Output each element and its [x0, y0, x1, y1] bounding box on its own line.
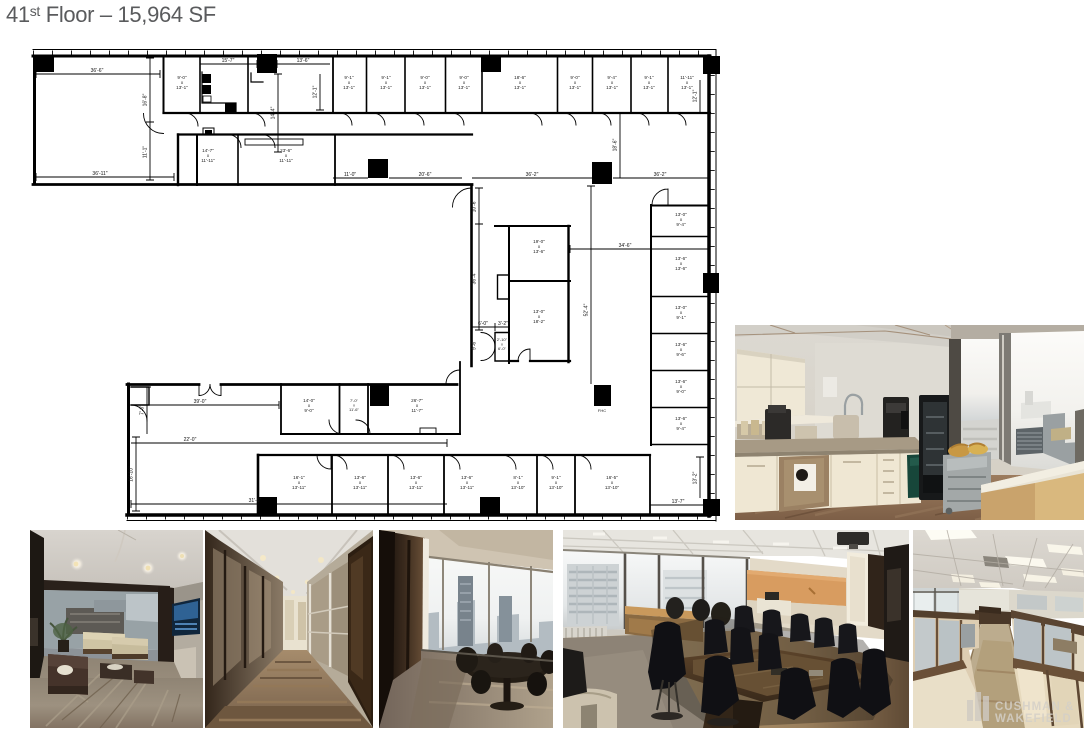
svg-text:31'-6": 31'-6": [249, 498, 262, 504]
svg-text:13'-6"x9'-6": 13'-6"x9'-6": [675, 342, 687, 357]
svg-text:16'-8": 16'-8": [143, 93, 149, 106]
svg-text:13'-0"x9'-1": 13'-0"x9'-1": [675, 305, 687, 320]
svg-text:13'-6"x13'-11": 13'-6"x13'-11": [353, 475, 367, 490]
svg-text:12'-1": 12'-1": [693, 89, 699, 102]
svg-text:23'-6"x11'-11": 23'-6"x11'-11": [279, 148, 293, 163]
svg-text:7'-0"x11'-6": 7'-0"x11'-6": [349, 398, 359, 412]
svg-text:13'-0"x18'-2": 13'-0"x18'-2": [533, 309, 545, 324]
svg-text:20'-6": 20'-6": [419, 172, 432, 178]
svg-text:11'-1": 11'-1": [143, 146, 149, 159]
svg-text:18'-6"x13'-1": 18'-6"x13'-1": [514, 75, 526, 90]
svg-text:9'-1"x13'-1": 9'-1"x13'-1": [643, 75, 655, 90]
svg-text:13'-6"x13'-11": 13'-6"x13'-11": [460, 475, 474, 490]
svg-text:39'-0": 39'-0": [194, 399, 207, 405]
svg-text:FHC: FHC: [598, 408, 606, 413]
svg-text:36'-4": 36'-4": [472, 271, 478, 284]
svg-text:CUSHMAN &: CUSHMAN &: [995, 701, 1074, 713]
svg-text:9'-0"x13'-1": 9'-0"x13'-1": [176, 75, 188, 90]
svg-text:14'-7"x11'-11": 14'-7"x11'-11": [201, 148, 215, 163]
svg-text:9'-4"x13'-1": 9'-4"x13'-1": [606, 75, 618, 90]
svg-text:14'-4": 14'-4": [271, 106, 277, 119]
svg-text:3'-2": 3'-2": [498, 321, 508, 327]
svg-text:13'-6"x13'-11": 13'-6"x13'-11": [409, 475, 423, 490]
svg-text:6'-0": 6'-0": [478, 321, 488, 327]
svg-text:36'-11": 36'-11": [92, 171, 107, 177]
svg-text:26'-7"x11'-7": 26'-7"x11'-7": [411, 398, 423, 413]
svg-text:13'-6": 13'-6": [297, 58, 310, 64]
svg-text:13'-6"x9'-0": 13'-6"x9'-0": [675, 379, 687, 394]
svg-text:11'-11"x13'-1": 11'-11"x13'-1": [680, 75, 694, 90]
svg-text:22'-0": 22'-0": [184, 437, 197, 443]
svg-text:36'-6": 36'-6": [91, 68, 104, 74]
svg-text:12'-1": 12'-1": [313, 85, 319, 98]
svg-text:9'-1"x13'-1": 9'-1"x13'-1": [343, 75, 355, 90]
svg-text:2'-10"x6'-0": 2'-10"x6'-0": [497, 337, 508, 351]
svg-text:36'-2": 36'-2": [526, 172, 539, 178]
svg-text:13'-7": 13'-7": [672, 499, 685, 505]
svg-text:16'-5"x13'-10": 16'-5"x13'-10": [605, 475, 620, 490]
svg-text:15'-7": 15'-7": [222, 58, 235, 64]
svg-text:9'-6": 9'-6": [472, 340, 478, 350]
svg-text:14'-0"x9'-0": 14'-0"x9'-0": [303, 398, 315, 413]
svg-text:16'-1"x13'-11": 16'-1"x13'-11": [292, 475, 306, 490]
svg-text:7'-6": 7'-6": [140, 405, 146, 415]
svg-text:9'-0"x13'-1": 9'-0"x13'-1": [458, 75, 470, 90]
svg-text:13'-2": 13'-2": [693, 471, 699, 484]
svg-text:36'-2": 36'-2": [654, 172, 667, 178]
svg-text:11'-0": 11'-0": [344, 172, 357, 178]
svg-text:34'-6": 34'-6": [619, 243, 632, 249]
svg-text:9'-0"x13'-1": 9'-0"x13'-1": [419, 75, 431, 90]
svg-text:WAKEFIELD: WAKEFIELD: [995, 713, 1072, 725]
svg-text:8'-1"x13'-10": 8'-1"x13'-10": [511, 475, 526, 490]
svg-text:16'-10": 16'-10": [129, 466, 135, 482]
svg-text:13'-6"x9'-4": 13'-6"x9'-4": [675, 416, 687, 431]
svg-text:52'-4": 52'-4": [584, 303, 590, 316]
svg-text:19'-0"x13'-6": 19'-0"x13'-6": [533, 239, 545, 254]
svg-text:9'-1"x13'-1": 9'-1"x13'-1": [380, 75, 392, 90]
svg-text:13'-0"x9'-4": 13'-0"x9'-4": [675, 212, 687, 227]
svg-text:9'-0"x13'-1": 9'-0"x13'-1": [569, 75, 581, 90]
svg-text:9'-1"x13'-10": 9'-1"x13'-10": [549, 475, 564, 490]
svg-text:10'-6": 10'-6": [472, 199, 478, 212]
svg-text:18'-6": 18'-6": [613, 138, 619, 151]
svg-text:13'-6"x13'-6": 13'-6"x13'-6": [675, 256, 687, 271]
